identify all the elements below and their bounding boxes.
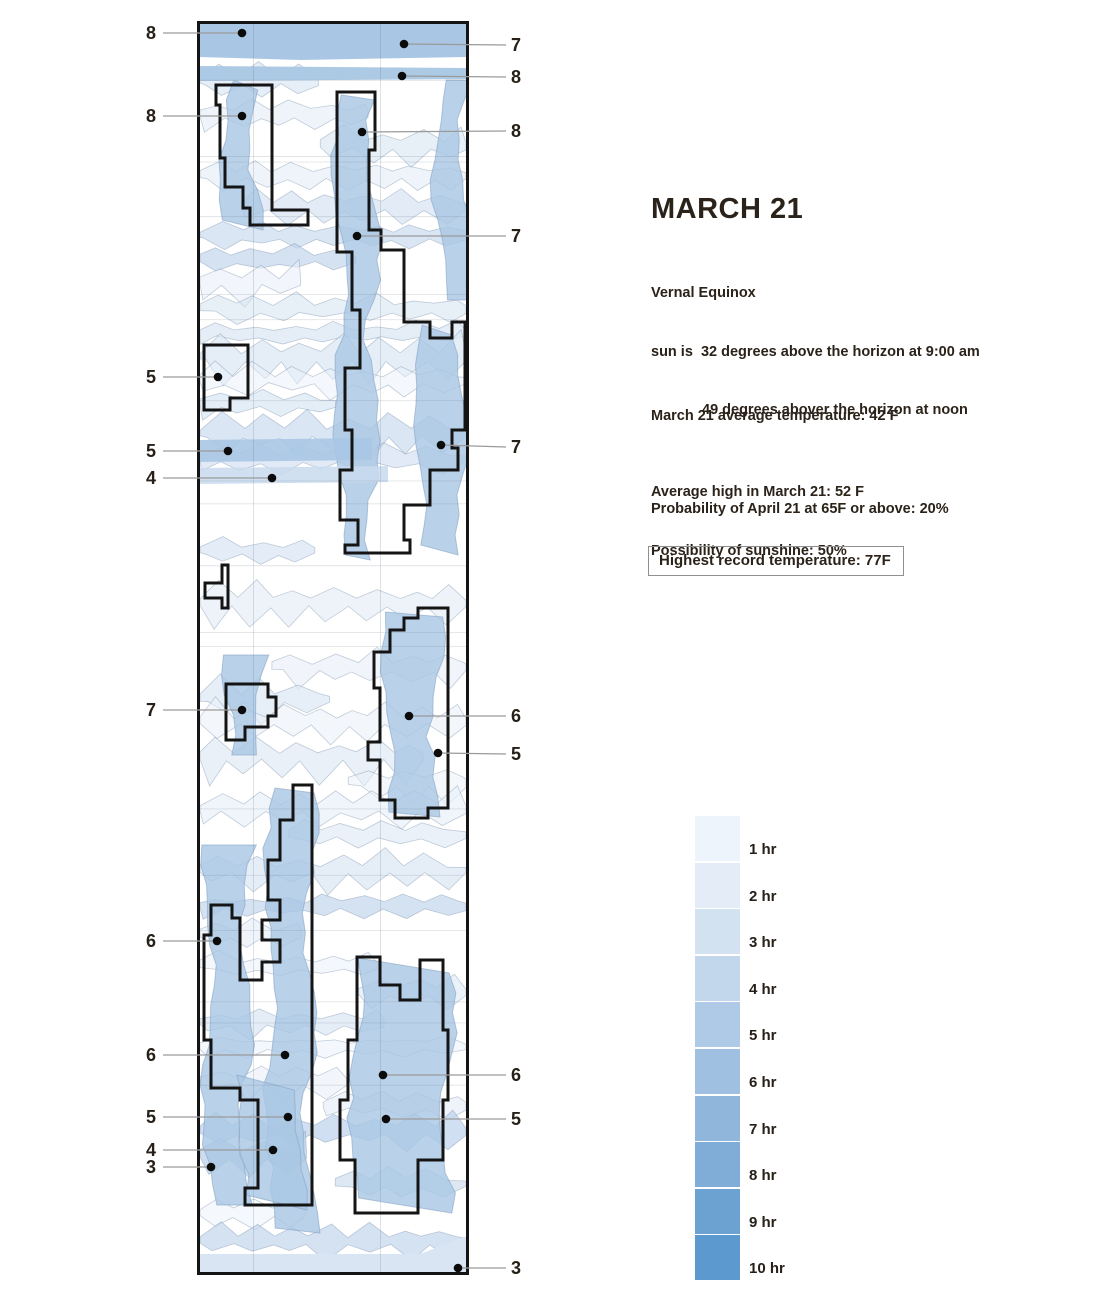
legend-swatch <box>695 1189 740 1234</box>
legend-label: 10 hr <box>749 1260 785 1277</box>
legend-item-6hr: 6 hr <box>695 1049 785 1094</box>
legend-item-8hr: 8 hr <box>695 1142 785 1187</box>
stat-average-high-block: Average high in March 21: 52 F Possibili… <box>651 444 864 600</box>
callout-value-left: 6 <box>130 931 156 951</box>
legend-label: 7 hr <box>749 1121 777 1138</box>
legend-label: 5 hr <box>749 1027 777 1044</box>
subtitle-line-2: sun is 32 degrees above the horizon at 9… <box>651 343 980 363</box>
callout-value-right: 5 <box>511 1109 545 1129</box>
legend-swatch <box>695 816 740 861</box>
infographic-page: 885547665437887765653 MARCH 21 Vernal Eq… <box>0 0 1100 1293</box>
legend-swatch <box>695 909 740 954</box>
legend-label: 2 hr <box>749 888 777 905</box>
legend-item-4hr: 4 hr <box>695 956 785 1001</box>
callout-value-left: 7 <box>130 700 156 720</box>
legend-item-10hr: 10 hr <box>695 1235 785 1280</box>
callout-value-left: 3 <box>130 1157 156 1177</box>
legend-label: 9 hr <box>749 1214 777 1231</box>
legend-swatch <box>695 1142 740 1187</box>
sunshine-legend: 1 hr2 hr3 hr4 hr5 hr6 hr7 hr8 hr9 hr10 h… <box>695 816 785 1282</box>
callout-value-right: 5 <box>511 744 545 764</box>
legend-item-3hr: 3 hr <box>695 909 785 954</box>
callout-value-left: 8 <box>130 106 156 126</box>
legend-label: 1 hr <box>749 841 777 858</box>
legend-swatch <box>695 1235 740 1280</box>
callout-value-left: 5 <box>130 367 156 387</box>
legend-swatch <box>695 956 740 1001</box>
callout-value-right: 7 <box>511 226 545 246</box>
legend-item-9hr: 9 hr <box>695 1189 785 1234</box>
legend-item-5hr: 5 hr <box>695 1002 785 1047</box>
subtitle-line-1: Vernal Equinox <box>651 284 980 304</box>
callout-value-left: 8 <box>130 23 156 43</box>
legend-label: 6 hr <box>749 1074 777 1091</box>
subtitle-block: Vernal Equinox sun is 32 degrees above t… <box>651 245 980 460</box>
callout-value-left: 5 <box>130 1107 156 1127</box>
stat-average-temperature: March 21 average temperature: 42 F <box>651 407 898 427</box>
legend-swatch <box>695 1049 740 1094</box>
legend-label: 4 hr <box>749 981 777 998</box>
callout-value-right: 7 <box>511 35 545 55</box>
page-title: MARCH 21 <box>651 193 803 226</box>
legend-swatch <box>695 1096 740 1141</box>
callout-value-right: 7 <box>511 437 545 457</box>
callout-value-left: 4 <box>130 468 156 488</box>
legend-swatch <box>695 863 740 908</box>
stat-probability: Probability of April 21 at 65F or above:… <box>651 500 949 520</box>
legend-item-1hr: 1 hr <box>695 816 785 861</box>
callout-value-left: 6 <box>130 1045 156 1065</box>
callout-value-right: 6 <box>511 706 545 726</box>
legend-item-2hr: 2 hr <box>695 863 785 908</box>
callout-value-right: 8 <box>511 67 545 87</box>
sunshine-hours-map <box>0 0 1100 1293</box>
legend-label: 3 hr <box>749 934 777 951</box>
callout-value-right: 8 <box>511 121 545 141</box>
callout-value-right: 3 <box>511 1258 545 1278</box>
record-temperature-box: Highest record temperature: 77F <box>648 546 904 576</box>
callout-value-left: 5 <box>130 441 156 461</box>
legend-item-7hr: 7 hr <box>695 1096 785 1141</box>
callout-value-right: 6 <box>511 1065 545 1085</box>
legend-label: 8 hr <box>749 1167 777 1184</box>
legend-swatch <box>695 1002 740 1047</box>
